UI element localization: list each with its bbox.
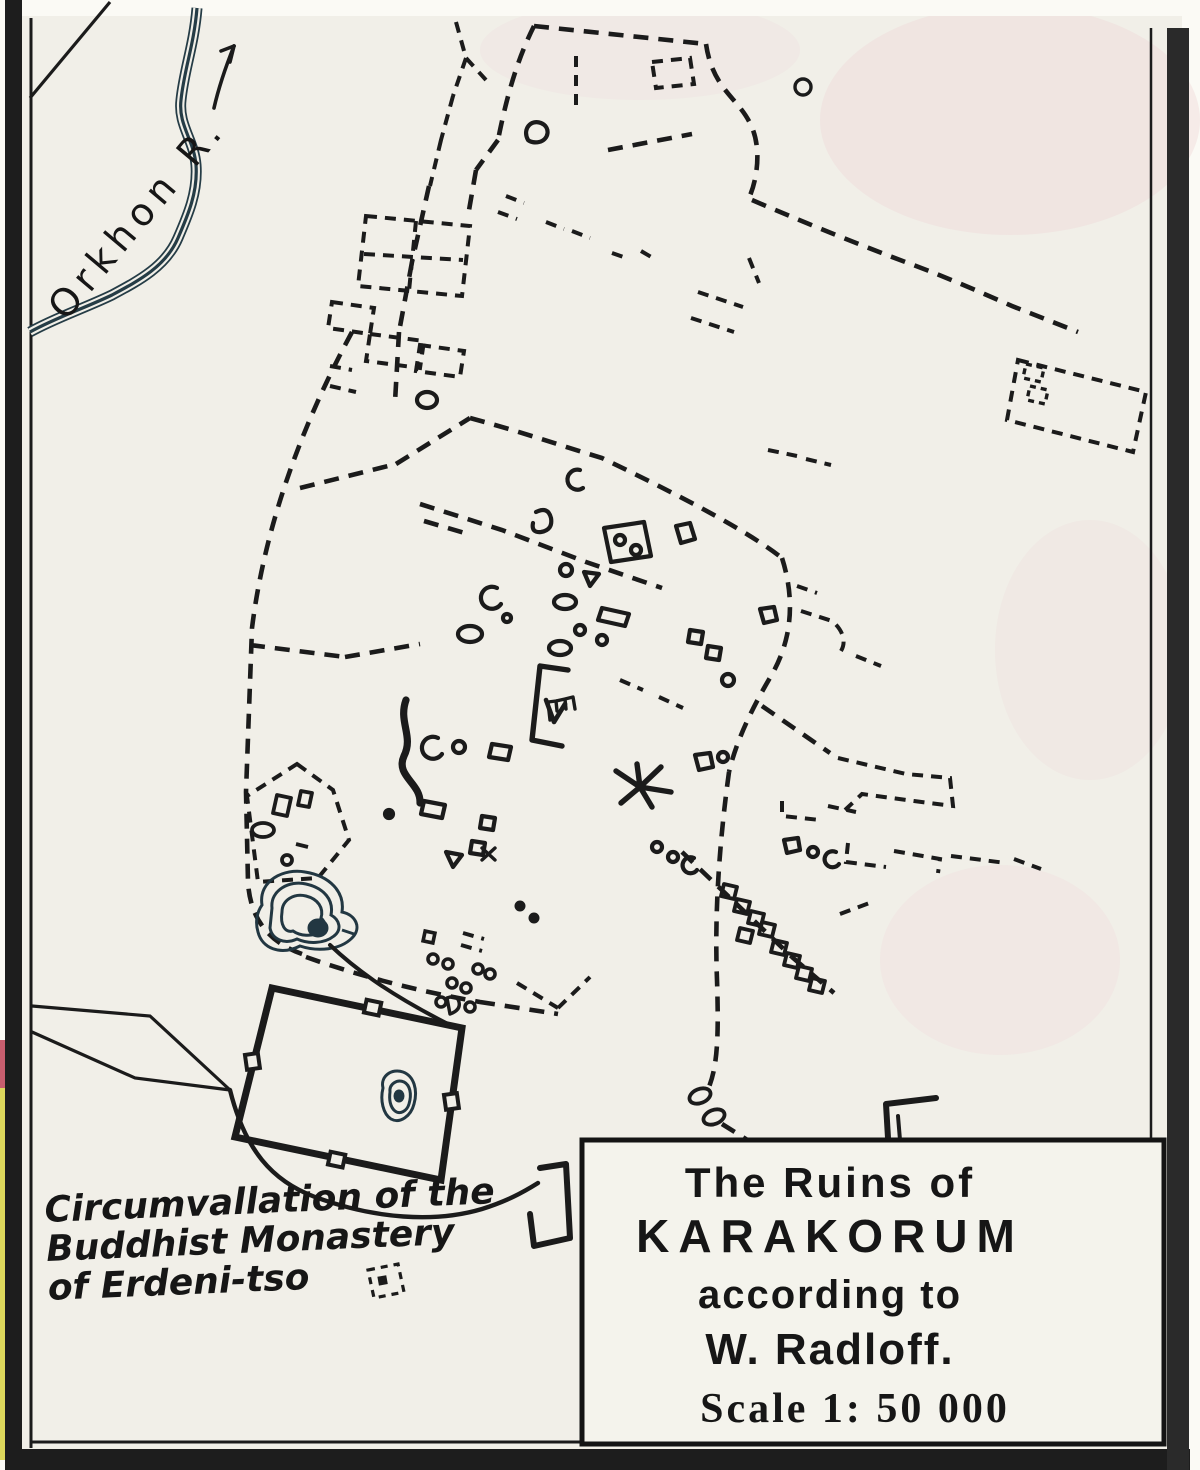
frame-right-strip <box>1167 28 1189 1470</box>
karakorum-map-page: Orkhon R. <box>0 0 1200 1470</box>
monastery-gate-west <box>245 1053 260 1070</box>
title-scale: Scale 1: 50 000 <box>700 1386 1010 1432</box>
frame-left-strip <box>5 0 22 1470</box>
title-line-1: The Ruins of <box>685 1159 975 1206</box>
title-line-3: according to <box>698 1273 962 1317</box>
map-canvas: Orkhon R. <box>0 0 1200 1470</box>
monastery-gate-east <box>444 1093 459 1110</box>
monastery-gate-north <box>364 1000 381 1016</box>
monastery-gate-south <box>328 1152 345 1168</box>
title-line-2: KARAKORUM <box>636 1210 1024 1262</box>
erdeni-tso-square-mark <box>377 1275 387 1285</box>
title-box: The Ruins of KARAKORUM according to W. R… <box>582 1140 1164 1444</box>
title-line-4: W. Radloff. <box>705 1325 954 1374</box>
frame-bottom-bar <box>5 1449 1190 1470</box>
